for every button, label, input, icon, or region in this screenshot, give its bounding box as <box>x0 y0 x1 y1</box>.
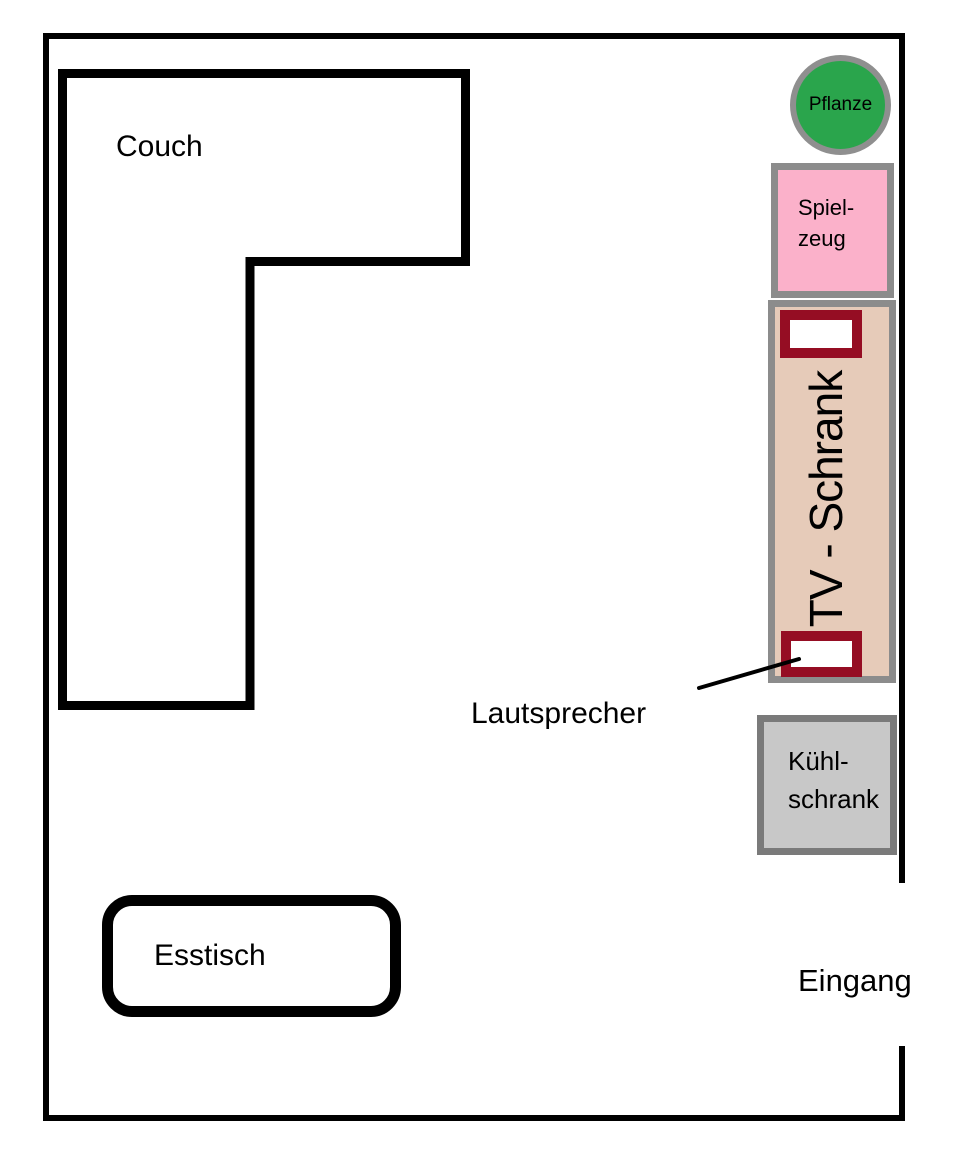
room-wall-right-lower <box>899 1046 905 1121</box>
pflanze-plant: Pflanze <box>790 55 891 155</box>
room-wall-top <box>43 33 905 39</box>
esstisch-label: Esstisch <box>154 939 266 973</box>
kuehlschrank-fridge: Kühl- schrank <box>757 715 897 855</box>
room-wall-left <box>43 33 49 1121</box>
pflanze-label: Pflanze <box>809 94 872 116</box>
spielzeug-label-line2: zeug <box>798 223 887 254</box>
couch-label: Couch <box>116 130 203 165</box>
couch-shape <box>63 74 466 706</box>
floor-plan-canvas: Couch Esstisch Pflanze Spiel- zeug TV - … <box>0 0 959 1153</box>
room-wall-bottom <box>43 1115 905 1121</box>
kuehlschrank-label-line2: schrank <box>788 780 890 818</box>
lautsprecher-label: Lautsprecher <box>471 697 646 732</box>
speaker-top <box>780 310 862 358</box>
room-wall-right-upper <box>899 33 905 883</box>
spielzeug-label-line1: Spiel- <box>798 192 887 223</box>
spielzeug-box: Spiel- zeug <box>771 163 894 298</box>
kuehlschrank-label-line1: Kühl- <box>788 742 890 780</box>
esstisch-table: Esstisch <box>102 895 401 1017</box>
speaker-bottom <box>781 631 862 677</box>
tv-schrank-label: TV - Schrank <box>796 349 856 649</box>
eingang-label: Eingang <box>798 963 912 999</box>
